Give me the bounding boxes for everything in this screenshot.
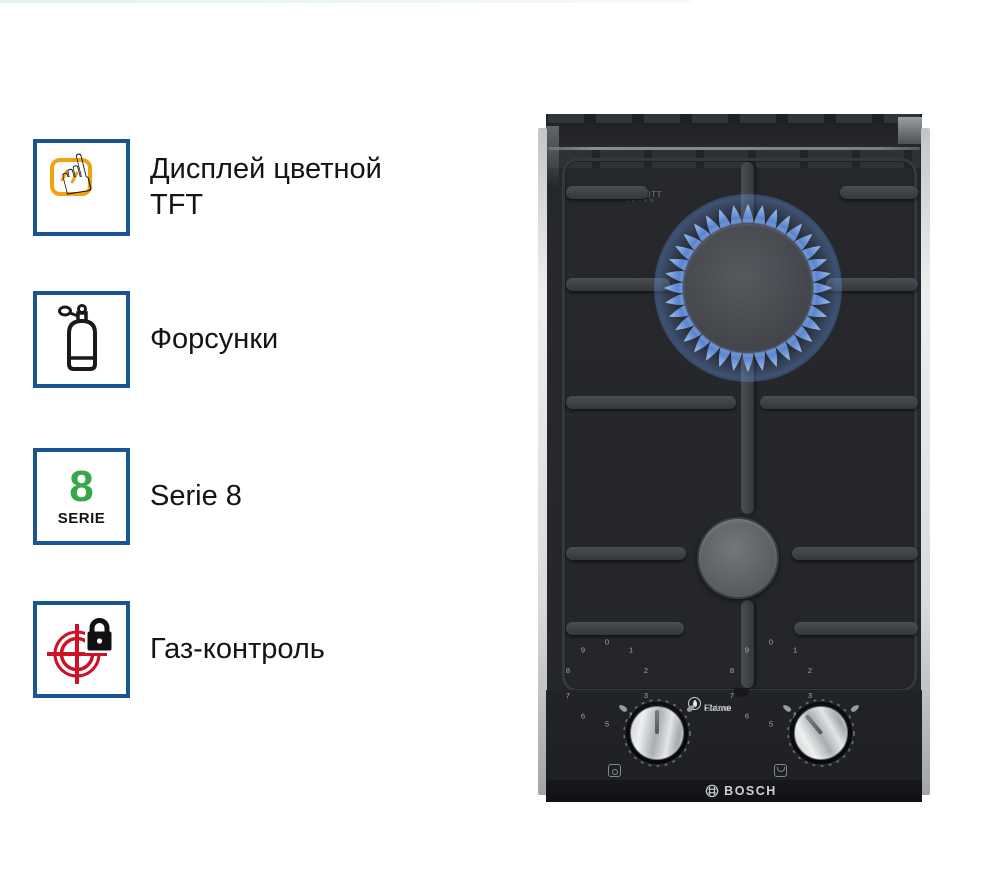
- front-burner-knob: 0123456789: [607, 683, 707, 783]
- gas-cylinder-icon: [33, 291, 130, 388]
- knob-scale-number: 7: [730, 691, 734, 700]
- feature-row-serie8: 8 SERIE Serie 8: [33, 448, 420, 545]
- knob-scale-number: 6: [745, 712, 749, 721]
- bosch-emblem-icon: [705, 784, 719, 798]
- knob-scale-number: 5: [769, 720, 773, 729]
- feature-row-tft-display: ☝ Дисплей цветной TFT: [33, 139, 420, 236]
- knob-scale-number: 3: [808, 691, 812, 700]
- knob-handle: [630, 706, 684, 760]
- pointing-hand-icon: ☝: [53, 146, 98, 206]
- knob-scale-number: 8: [730, 666, 734, 675]
- rear-burner-position-icon: [774, 764, 787, 777]
- rear-vent-strip: [548, 114, 920, 123]
- serie-caption: SERIE: [58, 510, 106, 527]
- touch-display-icon: ☝: [33, 139, 130, 236]
- knob-scale-number: 5: [605, 720, 609, 729]
- knob-scale-number: 2: [644, 666, 648, 675]
- feature-label: Дисплей цветной TFT: [150, 152, 420, 223]
- corner-reflection: [546, 126, 559, 188]
- knob-scale-number: 9: [581, 645, 585, 654]
- feature-row-nozzles: Форсунки: [33, 291, 420, 388]
- knob-indicator: [655, 710, 659, 734]
- knob-scale-number: 0: [605, 638, 609, 647]
- knob-scale-number: 1: [629, 645, 633, 654]
- knob-indicator: [805, 714, 823, 735]
- hob-product-image: SCHOTT CERAN: [538, 114, 930, 802]
- igniter-bump: [734, 688, 749, 697]
- front-burner-cap: [697, 517, 779, 599]
- feature-label: Газ-контроль: [150, 632, 420, 667]
- top-edge-line: [0, 0, 690, 3]
- knob-scale-number: 2: [808, 666, 812, 675]
- page: ☝ Дисплей цветной TFT Форсунки 8 SERIE S…: [0, 0, 1000, 870]
- feature-label: Форсунки: [150, 322, 420, 357]
- knob-scale-number: 3: [644, 691, 648, 700]
- knob-scale-number: 9: [745, 645, 749, 654]
- back-rail: [548, 123, 920, 147]
- feature-label: Serie 8: [150, 479, 420, 514]
- feature-row-gas-control: Газ-контроль: [33, 601, 420, 698]
- knob-scale-number: 8: [566, 666, 570, 675]
- knob-scale-number: 7: [566, 691, 570, 700]
- rear-burner-cap: [684, 224, 812, 352]
- right-steel-edge: [921, 128, 930, 795]
- knob-scale-number: 0: [769, 638, 773, 647]
- bosch-logo: BOSCH: [552, 783, 930, 799]
- knob-scale-number: 1: [793, 645, 797, 654]
- serie-number: 8: [69, 466, 93, 508]
- corner-reflection: [898, 117, 922, 144]
- front-burner-position-icon: [608, 764, 621, 777]
- knob-scale-number: 6: [581, 712, 585, 721]
- bosch-wordmark: BOSCH: [724, 784, 777, 798]
- serie-8-badge-icon: 8 SERIE: [33, 448, 130, 545]
- gas-control-icon: [33, 601, 130, 698]
